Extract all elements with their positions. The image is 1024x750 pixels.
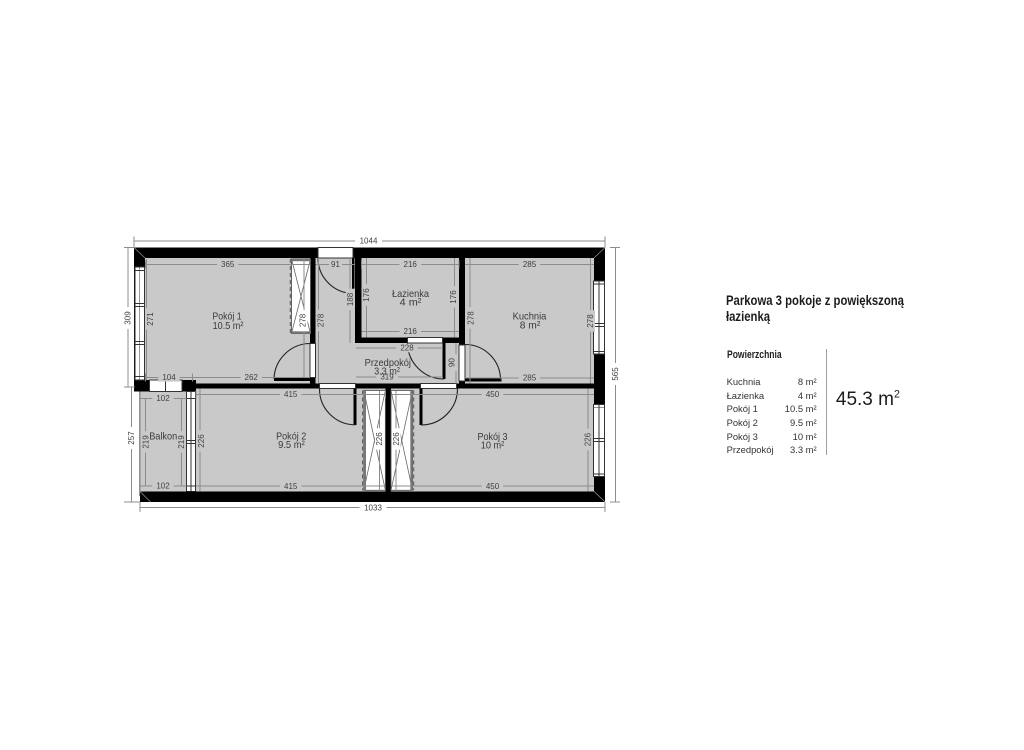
svg-text:176: 176 (362, 288, 371, 302)
svg-text:102: 102 (156, 482, 170, 491)
svg-text:278: 278 (586, 314, 595, 328)
svg-text:226: 226 (375, 432, 384, 446)
svg-text:226: 226 (392, 432, 401, 446)
svg-text:10 m²: 10 m² (481, 440, 505, 451)
svg-text:219: 219 (177, 435, 186, 449)
svg-text:Balkon: Balkon (149, 432, 177, 443)
svg-text:450: 450 (486, 482, 500, 491)
svg-text:228: 228 (400, 344, 414, 353)
svg-text:8 m²: 8 m² (520, 321, 541, 332)
svg-text:450: 450 (486, 390, 500, 399)
svg-text:9.5 m²: 9.5 m² (278, 440, 305, 451)
svg-text:104: 104 (162, 373, 176, 382)
svg-text:285: 285 (523, 260, 537, 269)
svg-text:226: 226 (584, 432, 593, 446)
svg-text:91: 91 (331, 260, 340, 269)
svg-text:216: 216 (404, 327, 418, 336)
svg-text:4 m²: 4 m² (400, 297, 422, 308)
svg-text:415: 415 (284, 482, 298, 491)
svg-text:271: 271 (146, 312, 155, 326)
svg-text:278: 278 (316, 313, 325, 327)
svg-text:565: 565 (611, 367, 620, 381)
svg-text:90: 90 (448, 358, 457, 367)
svg-text:3.3 m²: 3.3 m² (374, 367, 400, 378)
svg-text:188: 188 (346, 292, 355, 306)
svg-text:285: 285 (523, 373, 537, 382)
svg-text:309: 309 (124, 311, 133, 325)
svg-text:226: 226 (197, 434, 206, 448)
svg-text:278: 278 (299, 313, 308, 327)
svg-text:216: 216 (404, 260, 418, 269)
svg-text:415: 415 (284, 390, 298, 399)
svg-text:1033: 1033 (364, 503, 382, 512)
svg-text:102: 102 (156, 394, 170, 403)
svg-text:257: 257 (127, 431, 136, 445)
svg-text:278: 278 (467, 311, 476, 325)
svg-text:176: 176 (449, 290, 458, 304)
svg-text:10.5 m²: 10.5 m² (213, 321, 244, 332)
svg-text:1044: 1044 (360, 237, 378, 246)
svg-text:365: 365 (221, 260, 235, 269)
svg-text:262: 262 (245, 373, 259, 382)
